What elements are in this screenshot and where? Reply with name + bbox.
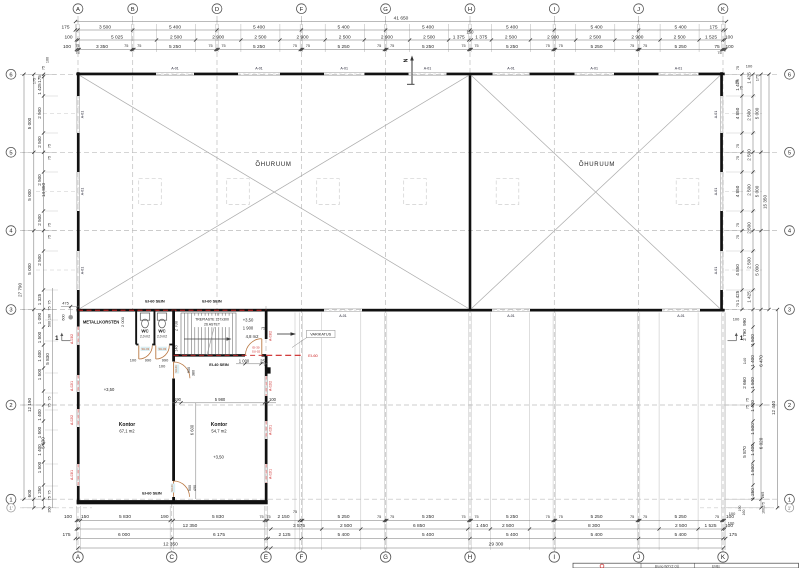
svg-text:2 700: 2 700 <box>174 320 179 331</box>
svg-text:1 425: 1 425 <box>735 290 740 302</box>
svg-text:75: 75 <box>717 51 721 55</box>
svg-text:5 830: 5 830 <box>41 437 46 449</box>
svg-text:5 250: 5 250 <box>674 514 686 520</box>
svg-text:2 500: 2 500 <box>170 35 182 41</box>
svg-text:75: 75 <box>735 80 739 84</box>
svg-text:B: B <box>131 7 135 13</box>
svg-text:A-02/2: A-02/2 <box>269 381 273 391</box>
svg-text:75: 75 <box>48 144 52 148</box>
svg-text:5 400: 5 400 <box>674 24 686 30</box>
svg-text:175: 175 <box>37 75 42 83</box>
svg-text:75: 75 <box>48 300 52 304</box>
svg-text:12 190: 12 190 <box>27 398 32 412</box>
svg-text:75: 75 <box>259 515 263 519</box>
svg-text:75: 75 <box>714 44 720 50</box>
svg-text:ÕHURUUM: ÕHURUUM <box>255 161 291 168</box>
svg-text:75: 75 <box>736 144 740 148</box>
svg-text:6 020: 6 020 <box>759 437 764 449</box>
svg-text:1 400: 1 400 <box>37 350 42 362</box>
svg-text:1 500: 1 500 <box>37 368 42 380</box>
svg-text:175: 175 <box>709 24 717 30</box>
svg-text:1: 1 <box>9 497 12 503</box>
svg-text:2 500: 2 500 <box>37 136 42 148</box>
svg-text:3: 3 <box>788 308 791 314</box>
svg-text:TREPIASTE 157x300: TREPIASTE 157x300 <box>195 318 229 322</box>
svg-text:75: 75 <box>746 405 750 409</box>
svg-text:75: 75 <box>643 515 647 519</box>
svg-text:SU-03: SU-03 <box>141 347 149 351</box>
svg-text:2 500: 2 500 <box>505 35 517 41</box>
svg-text:2 000: 2 000 <box>120 316 125 327</box>
svg-text:100: 100 <box>725 44 733 50</box>
svg-text:900: 900 <box>187 367 191 373</box>
svg-text:14 850: 14 850 <box>41 183 46 197</box>
svg-text:4,8 m2: 4,8 m2 <box>246 334 259 339</box>
svg-text:5 830: 5 830 <box>45 353 50 365</box>
svg-text:100: 100 <box>46 57 50 63</box>
svg-text:4 850: 4 850 <box>735 107 740 119</box>
svg-text:12 350: 12 350 <box>183 523 198 529</box>
svg-text:75: 75 <box>736 223 740 227</box>
svg-text:2 500: 2 500 <box>423 35 435 41</box>
svg-text:1 500: 1 500 <box>37 426 42 438</box>
svg-text:75: 75 <box>377 515 381 519</box>
svg-text:100: 100 <box>729 511 736 516</box>
svg-text:5 400: 5 400 <box>422 24 434 30</box>
svg-text:1 500: 1 500 <box>37 461 42 473</box>
svg-text:4 850: 4 850 <box>735 185 740 197</box>
svg-text:75: 75 <box>390 44 394 48</box>
svg-text:2 900: 2 900 <box>547 35 559 41</box>
svg-text:METALLKORSTEN: METALLKORSTEN <box>83 320 119 325</box>
svg-text:I: I <box>553 554 555 561</box>
svg-text:E: E <box>264 554 268 561</box>
svg-text:5 250: 5 250 <box>590 514 602 520</box>
svg-text:2 900: 2 900 <box>381 35 393 41</box>
svg-text:6: 6 <box>788 72 791 78</box>
svg-text:5 000: 5 000 <box>27 117 32 129</box>
svg-text:75: 75 <box>630 44 634 48</box>
svg-text:1 525: 1 525 <box>704 523 716 529</box>
svg-text:75: 75 <box>715 515 719 519</box>
svg-text:75: 75 <box>124 44 128 48</box>
svg-text:100: 100 <box>159 364 166 369</box>
svg-text:1': 1' <box>788 506 792 511</box>
svg-text:150: 150 <box>81 514 89 520</box>
svg-text:A-01: A-01 <box>714 267 718 275</box>
svg-text:490: 490 <box>193 485 197 491</box>
svg-text:6: 6 <box>9 72 12 78</box>
svg-text:75: 75 <box>75 51 79 55</box>
svg-text:75: 75 <box>559 44 563 48</box>
svg-text:A-01: A-01 <box>171 66 179 70</box>
svg-text:H: H <box>468 554 472 561</box>
svg-text:8 300: 8 300 <box>588 523 600 529</box>
svg-text:75: 75 <box>736 66 740 70</box>
svg-text:67,1 m2: 67,1 m2 <box>119 429 135 434</box>
svg-text:5 870: 5 870 <box>742 446 747 458</box>
svg-text:1: 1 <box>788 497 791 503</box>
svg-text:5 250: 5 250 <box>422 44 434 50</box>
svg-text:75: 75 <box>48 235 52 239</box>
svg-text:5 025: 5 025 <box>111 35 123 41</box>
svg-text:2 500: 2 500 <box>589 35 601 41</box>
svg-text:4 850: 4 850 <box>735 264 740 276</box>
svg-text:15 350: 15 350 <box>763 195 768 209</box>
svg-text:VARIKATUS: VARIKATUS <box>310 333 331 337</box>
svg-text:1': 1' <box>9 506 13 511</box>
svg-text:100: 100 <box>725 35 733 41</box>
svg-text:75: 75 <box>736 303 740 307</box>
svg-text:75: 75 <box>293 510 297 514</box>
svg-text:380: 380 <box>192 370 196 376</box>
svg-text:140: 140 <box>175 345 179 351</box>
svg-text:A-02/2: A-02/2 <box>70 415 74 425</box>
svg-text:5 400: 5 400 <box>253 24 265 30</box>
svg-text:190: 190 <box>160 514 168 520</box>
svg-text:2 500: 2 500 <box>674 35 686 41</box>
svg-text:2 500: 2 500 <box>747 257 752 269</box>
svg-text:75: 75 <box>559 515 563 519</box>
svg-text:1 375: 1 375 <box>475 35 487 41</box>
svg-text:75: 75 <box>630 515 634 519</box>
svg-text:C: C <box>169 554 174 561</box>
svg-text:2 900: 2 900 <box>296 35 308 41</box>
svg-text:H: H <box>468 7 472 13</box>
svg-text:5: 5 <box>9 150 12 156</box>
svg-text:A-01: A-01 <box>81 267 85 275</box>
svg-text:26 ASTET: 26 ASTET <box>204 322 221 326</box>
svg-text:140: 140 <box>742 357 747 364</box>
svg-text:5 250: 5 250 <box>422 514 434 520</box>
svg-text:600: 600 <box>62 314 66 320</box>
svg-text:27 790: 27 790 <box>17 283 22 297</box>
svg-text:75: 75 <box>48 223 52 227</box>
svg-text:5 400: 5 400 <box>506 532 518 538</box>
svg-text:EI-60 SEIN: EI-60 SEIN <box>142 491 162 496</box>
svg-text:41 650: 41 650 <box>394 15 409 21</box>
svg-text:2 900: 2 900 <box>212 35 224 41</box>
svg-text:5 250: 5 250 <box>590 44 602 50</box>
svg-text:A-02/1: A-02/1 <box>269 469 273 479</box>
svg-text:75: 75 <box>208 44 212 48</box>
svg-text:75: 75 <box>48 496 52 500</box>
svg-text:A-01: A-01 <box>590 66 598 70</box>
svg-text:2: 2 <box>788 403 791 409</box>
svg-text:75: 75 <box>48 306 52 310</box>
svg-text:5 000: 5 000 <box>755 107 760 119</box>
svg-text:1 425: 1 425 <box>747 291 752 303</box>
svg-text:100: 100 <box>728 521 735 526</box>
svg-text:5 400: 5 400 <box>506 24 518 30</box>
svg-text:75: 75 <box>48 490 52 494</box>
svg-text:A-01: A-01 <box>675 66 683 70</box>
svg-text:5 250: 5 250 <box>337 44 349 50</box>
svg-text:1 090: 1 090 <box>37 312 42 324</box>
svg-text:3: 3 <box>9 308 12 314</box>
svg-text:2 500: 2 500 <box>747 149 752 161</box>
svg-text:350: 350 <box>48 506 52 512</box>
svg-text:5 250: 5 250 <box>169 44 181 50</box>
svg-text:5 400: 5 400 <box>337 532 349 538</box>
svg-text:12 440: 12 440 <box>771 401 776 415</box>
svg-text:75: 75 <box>546 515 550 519</box>
svg-text:265: 265 <box>760 492 765 499</box>
svg-text:5 000: 5 000 <box>27 189 32 201</box>
svg-text:100: 100 <box>63 44 71 50</box>
svg-text:Kontor: Kontor <box>211 422 227 428</box>
svg-text:75: 75 <box>137 44 141 48</box>
svg-text:6 850: 6 850 <box>413 523 425 529</box>
svg-text:2: 2 <box>9 403 12 409</box>
svg-text:WC: WC <box>158 329 166 334</box>
svg-text:1 500: 1 500 <box>750 377 755 389</box>
svg-text:600: 600 <box>27 489 32 497</box>
svg-text:2 500: 2 500 <box>747 184 752 196</box>
svg-text:5 000: 5 000 <box>755 185 760 197</box>
svg-text:A-01: A-01 <box>424 66 432 70</box>
svg-text:EI-60 SEIN: EI-60 SEIN <box>145 298 165 303</box>
svg-text:5 400: 5 400 <box>337 24 349 30</box>
svg-text:1 325: 1 325 <box>37 293 42 305</box>
svg-text:175: 175 <box>755 75 760 82</box>
svg-text:75: 75 <box>221 44 225 48</box>
svg-text:5 400: 5 400 <box>674 532 686 538</box>
svg-text:1 500: 1 500 <box>750 464 755 476</box>
svg-text:5 830: 5 830 <box>119 514 131 520</box>
svg-text:2 500: 2 500 <box>747 222 752 234</box>
svg-text:1 250: 1 250 <box>750 488 755 500</box>
svg-text:3 500: 3 500 <box>99 24 111 30</box>
svg-text:2 500: 2 500 <box>675 523 687 529</box>
svg-text:5 830: 5 830 <box>212 514 224 520</box>
svg-text:54,7 m2: 54,7 m2 <box>211 429 227 434</box>
svg-text:75: 75 <box>75 44 79 48</box>
svg-text:F: F <box>300 554 304 561</box>
svg-text:5 400: 5 400 <box>169 24 181 30</box>
svg-text:5: 5 <box>788 150 791 156</box>
svg-text:A-01: A-01 <box>714 188 718 196</box>
svg-text:SU-01: SU-01 <box>174 365 178 373</box>
svg-text:5 400: 5 400 <box>422 532 434 538</box>
svg-text:ÕHURUUM: ÕHURUUM <box>579 161 615 168</box>
svg-text:100: 100 <box>269 397 277 402</box>
svg-text:175: 175 <box>61 24 69 30</box>
svg-text:75: 75 <box>48 156 52 160</box>
svg-text:2,0 m2: 2,0 m2 <box>140 335 150 339</box>
svg-text:J: J <box>637 7 640 13</box>
svg-text:100: 100 <box>733 317 740 322</box>
svg-text:Bruno WXYZ OÜ: Bruno WXYZ OÜ <box>655 564 680 568</box>
svg-text:1 400: 1 400 <box>37 409 42 421</box>
svg-text:100: 100 <box>746 64 753 69</box>
svg-text:A-03/2: A-03/2 <box>269 331 273 341</box>
svg-text:75: 75 <box>266 515 270 519</box>
svg-text:1 400: 1 400 <box>750 355 755 367</box>
svg-text:29 300: 29 300 <box>489 541 504 547</box>
svg-text:75: 75 <box>736 235 740 239</box>
svg-text:2 900: 2 900 <box>631 35 643 41</box>
svg-text:SU-01: SU-01 <box>170 484 174 492</box>
svg-text:75: 75 <box>48 396 52 400</box>
svg-text:D: D <box>215 7 219 13</box>
svg-text:75: 75 <box>546 44 550 48</box>
svg-text:2,0 m2: 2,0 m2 <box>157 335 167 339</box>
svg-text:1 400: 1 400 <box>750 400 755 412</box>
svg-text:3 350: 3 350 <box>96 44 108 50</box>
svg-text:75: 75 <box>306 44 310 48</box>
svg-text:A-02/1: A-02/1 <box>70 381 74 391</box>
svg-text:+3,50: +3,50 <box>243 318 254 323</box>
svg-text:1 375: 1 375 <box>453 35 465 41</box>
svg-text:5 250: 5 250 <box>674 44 686 50</box>
svg-text:2 500: 2 500 <box>37 107 42 119</box>
svg-text:G: G <box>383 554 388 561</box>
svg-text:6 175: 6 175 <box>213 532 225 538</box>
svg-text:25: 25 <box>260 359 265 364</box>
svg-text:75: 75 <box>746 398 750 402</box>
svg-text:2 500: 2 500 <box>37 214 42 226</box>
svg-text:75: 75 <box>390 515 394 519</box>
svg-text:2 500: 2 500 <box>254 35 266 41</box>
svg-text:75: 75 <box>736 156 740 160</box>
svg-text:1 000: 1 000 <box>239 359 250 364</box>
svg-text:5 250: 5 250 <box>506 44 518 50</box>
svg-text:2 125: 2 125 <box>278 532 290 538</box>
svg-text:75: 75 <box>474 515 478 519</box>
svg-text:2 500: 2 500 <box>340 523 352 529</box>
svg-text:150: 150 <box>467 30 475 35</box>
svg-text:160: 160 <box>742 510 746 516</box>
svg-text:2 500: 2 500 <box>339 35 351 41</box>
svg-text:500: 500 <box>48 321 52 327</box>
svg-text:2 660: 2 660 <box>742 377 747 389</box>
svg-text:6 600: 6 600 <box>190 424 195 435</box>
svg-text:5 250: 5 250 <box>506 514 518 520</box>
svg-text:+3,50: +3,50 <box>213 455 224 460</box>
svg-text:A-01: A-01 <box>81 188 85 196</box>
svg-text:990: 990 <box>145 358 152 363</box>
svg-text:175: 175 <box>729 532 737 538</box>
svg-text:5 000: 5 000 <box>755 264 760 276</box>
svg-text:160: 160 <box>762 508 766 514</box>
svg-text:1 250: 1 250 <box>37 486 42 498</box>
svg-text:1 500: 1 500 <box>750 423 755 435</box>
svg-text:75: 75 <box>461 44 465 48</box>
svg-text:Kontor: Kontor <box>119 422 135 428</box>
svg-text:75: 75 <box>377 44 381 48</box>
svg-text:1 425: 1 425 <box>37 83 42 95</box>
svg-text:EI-40 SEIN: EI-40 SEIN <box>209 362 229 367</box>
svg-text:475: 475 <box>62 300 69 305</box>
svg-text:A-01: A-01 <box>714 111 718 119</box>
svg-text:EI-60: EI-60 <box>308 353 318 358</box>
svg-text:100: 100 <box>130 358 137 363</box>
svg-text:2 150: 2 150 <box>277 514 289 520</box>
svg-text:175: 175 <box>762 502 766 508</box>
svg-text:A-01: A-01 <box>507 314 515 318</box>
svg-text:75: 75 <box>42 66 46 70</box>
svg-text:75: 75 <box>474 44 478 48</box>
svg-text:A-01: A-01 <box>255 66 263 70</box>
svg-text:1 400: 1 400 <box>750 444 755 456</box>
svg-text:5 000: 5 000 <box>27 263 32 275</box>
svg-text:100: 100 <box>64 35 72 41</box>
svg-text:190: 190 <box>48 314 52 320</box>
svg-text:75: 75 <box>643 44 647 48</box>
svg-text:3 575: 3 575 <box>293 523 305 529</box>
svg-text:A-01: A-01 <box>339 314 347 318</box>
svg-text:75: 75 <box>461 515 465 519</box>
svg-text:75: 75 <box>740 86 744 90</box>
svg-text:SU-03: SU-03 <box>158 347 166 351</box>
svg-text:990: 990 <box>162 358 169 363</box>
svg-text:5 250: 5 250 <box>337 514 349 520</box>
svg-text:Ehitis: Ehitis <box>712 564 720 568</box>
svg-text:K: K <box>721 7 725 13</box>
svg-text:5 400: 5 400 <box>590 532 602 538</box>
svg-text:F: F <box>300 7 304 13</box>
svg-text:1 500: 1 500 <box>37 331 42 343</box>
svg-text:2 500: 2 500 <box>747 109 752 121</box>
svg-text:A-02/1: A-02/1 <box>269 425 273 435</box>
svg-text:1 450: 1 450 <box>476 523 488 529</box>
svg-text:5 400: 5 400 <box>590 24 602 30</box>
svg-text:N: N <box>404 58 410 62</box>
svg-text:A-01: A-01 <box>340 66 348 70</box>
svg-text:+3,50: +3,50 <box>104 387 115 392</box>
svg-text:6 470: 6 470 <box>759 355 764 367</box>
svg-text:A-01: A-01 <box>507 66 515 70</box>
svg-text:WC: WC <box>141 329 149 334</box>
svg-text:J: J <box>637 554 640 561</box>
svg-text:A-01: A-01 <box>81 111 85 119</box>
svg-text:G: G <box>383 7 388 13</box>
svg-text:6 000: 6 000 <box>118 532 130 538</box>
svg-text:2 500: 2 500 <box>37 254 42 266</box>
svg-text:990: 990 <box>742 318 747 326</box>
svg-text:75: 75 <box>261 327 265 331</box>
svg-text:12 350: 12 350 <box>163 541 178 547</box>
svg-text:5 250: 5 250 <box>253 44 265 50</box>
svg-text:2 500: 2 500 <box>502 523 514 529</box>
svg-text:A-03/2: A-03/2 <box>70 334 74 344</box>
svg-text:A: A <box>76 7 80 13</box>
svg-text:A-01: A-01 <box>677 314 685 318</box>
svg-text:SU-02: SU-02 <box>252 350 261 354</box>
svg-text:175: 175 <box>33 78 37 84</box>
svg-text:175: 175 <box>62 532 70 538</box>
svg-text:75: 75 <box>48 403 52 407</box>
svg-text:190: 190 <box>174 397 182 402</box>
svg-text:100: 100 <box>64 514 72 520</box>
svg-text:1 900: 1 900 <box>243 326 254 331</box>
svg-text:1 500: 1 500 <box>750 334 755 346</box>
svg-text:75: 75 <box>293 44 297 48</box>
svg-text:1 525: 1 525 <box>705 35 717 41</box>
svg-text:EI-60 SEIN: EI-60 SEIN <box>202 298 222 303</box>
svg-text:5 980: 5 980 <box>215 397 226 402</box>
svg-text:A-03/1: A-03/1 <box>70 470 74 480</box>
svg-text:1 425: 1 425 <box>747 72 752 84</box>
svg-text:900: 900 <box>188 485 192 491</box>
